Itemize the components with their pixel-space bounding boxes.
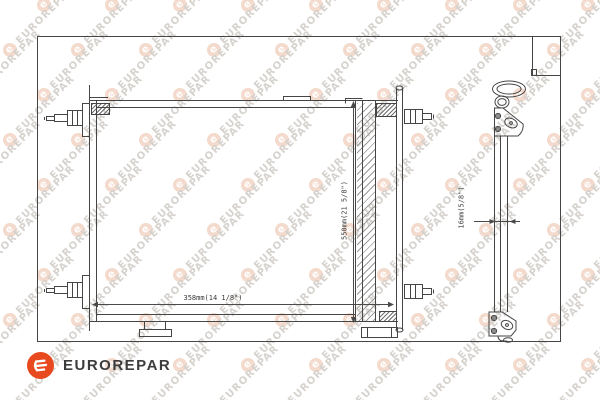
- dimension-label-pipe: 16mm(5/8"): [458, 178, 467, 238]
- condenser-technical-drawing: [0, 0, 600, 400]
- pipe-assembly: [489, 81, 526, 342]
- mounting-feet: [140, 322, 398, 338]
- dimension-lines: [93, 103, 520, 321]
- fitting-bottom-left: [45, 276, 90, 309]
- eurorepar-e-icon: [31, 356, 50, 375]
- eurorepar-logo-icon: [27, 352, 54, 379]
- receiver-drier: [377, 86, 434, 332]
- dimension-label-width: 358mm(14 1/8"): [158, 294, 268, 303]
- drawing-frame: [38, 37, 561, 342]
- dimension-arrows: [92, 101, 516, 323]
- product-image: eEUROREPAReEUROREPAReEUROREPAReEUROREPAR…: [0, 0, 600, 400]
- dimension-label-height: 550mm(21 5/8"): [341, 166, 350, 256]
- fitting-top-left: [45, 104, 90, 137]
- eurorepar-logo-text: EUROREPAR: [63, 357, 171, 374]
- eurorepar-logo: EUROREPAR: [27, 352, 171, 379]
